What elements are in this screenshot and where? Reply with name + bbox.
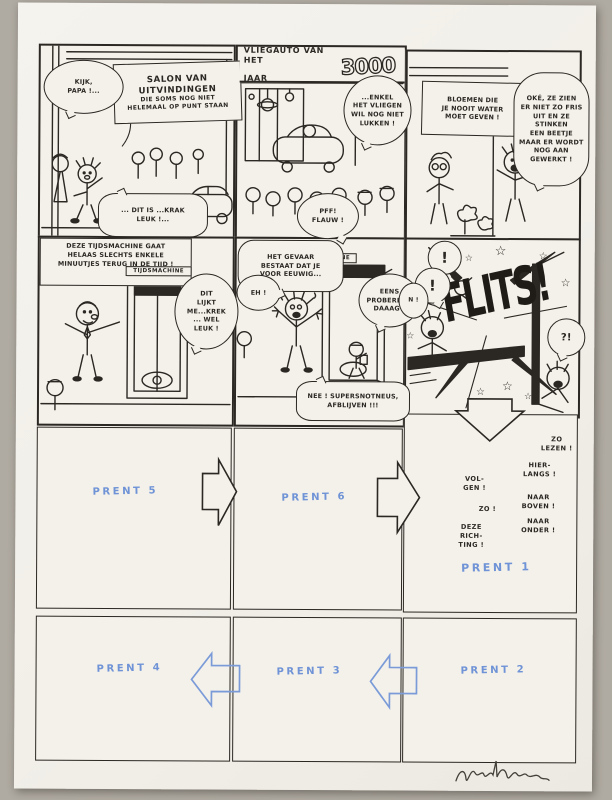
speech-bubble-nee: NEE ! SUPERSNOTNEUS, AFBLIJVEN !!! <box>296 381 410 422</box>
artist-signature <box>450 761 554 792</box>
note-vol-gen: VOL- GEN ! <box>456 475 494 493</box>
speech-bubble-kijk: KIJK, PAPA !... <box>43 60 123 114</box>
note-naar-onder: NAAR ONDER ! <box>515 517 561 535</box>
panel-3: BLOEMEN DIE JE NOOIT WATER MOET GEVEN ! … <box>405 50 582 241</box>
panel-5: HET GEVAAR BESTAAT DAT JE VOOR EEUWIG...… <box>234 237 406 428</box>
note-zo-lezen: ZO LEZEN ! <box>531 435 583 453</box>
arrow-right-icon <box>202 457 236 527</box>
speech-bubble-krak: ... DIT IS ...KRAK LEUK !... <box>98 193 208 238</box>
star-icon: ☆ <box>561 278 571 289</box>
comic-art-sheet: KIJK, PAPA !... SALON VAN UITVINDINGEN D… <box>14 2 596 791</box>
sign-line: JAAR <box>244 74 333 84</box>
photo-backdrop: KIJK, PAPA !... SALON VAN UITVINDINGEN D… <box>0 0 612 800</box>
speech-bubble-oke: OKÉ, ZE ZIEN ER NIET ZO FRIS UIT EN ZE S… <box>513 72 590 186</box>
panel-2: VLIEGAUTO VAN HET JAAR 3000 ...ENKEL HET… <box>235 45 407 240</box>
edge-bubble: N ! <box>398 282 428 318</box>
speech-bubble-pff: PFF! FLAUW ! <box>297 193 359 239</box>
note-deze-richting: DEZE RICH- TING ! <box>451 523 491 550</box>
note-naar-boven: NAAR BOVEN ! <box>513 493 563 511</box>
panel-6: FLITS! ! ! N ! ?! ☆ ☆ ☆ ☆ ☆ ☆ ☆ ☆ <box>404 238 581 419</box>
star-icon: ☆ <box>465 254 473 263</box>
speech-bubble-eh: EH ! <box>236 275 280 311</box>
prent-4-note: PRENT 4 <box>96 662 162 674</box>
star-icon: ☆ <box>495 244 507 257</box>
arrow-left-blue-icon <box>370 650 416 712</box>
machine-label: TIJDSMACHINE <box>126 266 192 276</box>
star-icon: ☆ <box>502 380 513 392</box>
panel-4: DEZE TIJDSMACHINE GAAT HELAAS SLECHTS EN… <box>37 236 235 427</box>
interrobang-bubble: ?! <box>547 318 585 356</box>
speech-bubble-enkel: ...ENKEL HET VLIEGEN WIL NOG NIET LUKKEN… <box>343 75 411 145</box>
prent-5-note: PRENT 5 <box>92 485 158 497</box>
note-hier-langs: HIER- LANGS ! <box>516 461 564 479</box>
prent-2-note: PRENT 2 <box>460 664 526 676</box>
arrow-left-blue-icon <box>191 649 239 709</box>
prent-1-note: PRENT 1 <box>461 560 532 575</box>
prent-6-note: PRENT 6 <box>281 491 347 503</box>
star-icon: ☆ <box>406 332 414 341</box>
arrow-right-icon <box>377 460 419 534</box>
speech-bubble-dit: DIT LIJKT ME...KREK ... WEL LEUK ! <box>174 273 238 349</box>
sign-salon: SALON VAN UITVINDINGEN DIE SOMS NOG NIET… <box>113 60 243 124</box>
prent-3-note: PRENT 3 <box>276 665 342 677</box>
panel-12-empty <box>402 618 577 764</box>
sign-line: VLIEGAUTO VAN HET <box>244 45 333 65</box>
arrow-down-icon <box>456 397 526 443</box>
panel-1: KIJK, PAPA !... SALON VAN UITVINDINGEN D… <box>38 44 236 239</box>
sign-bloemen: BLOEMEN DIE JE NOOIT WATER MOET GEVEN ! <box>421 81 524 137</box>
note-zo: ZO ! <box>473 505 501 514</box>
caption-tijdsmachine: DEZE TIJDSMACHINE GAAT HELAAS SLECHTS EN… <box>40 238 192 287</box>
